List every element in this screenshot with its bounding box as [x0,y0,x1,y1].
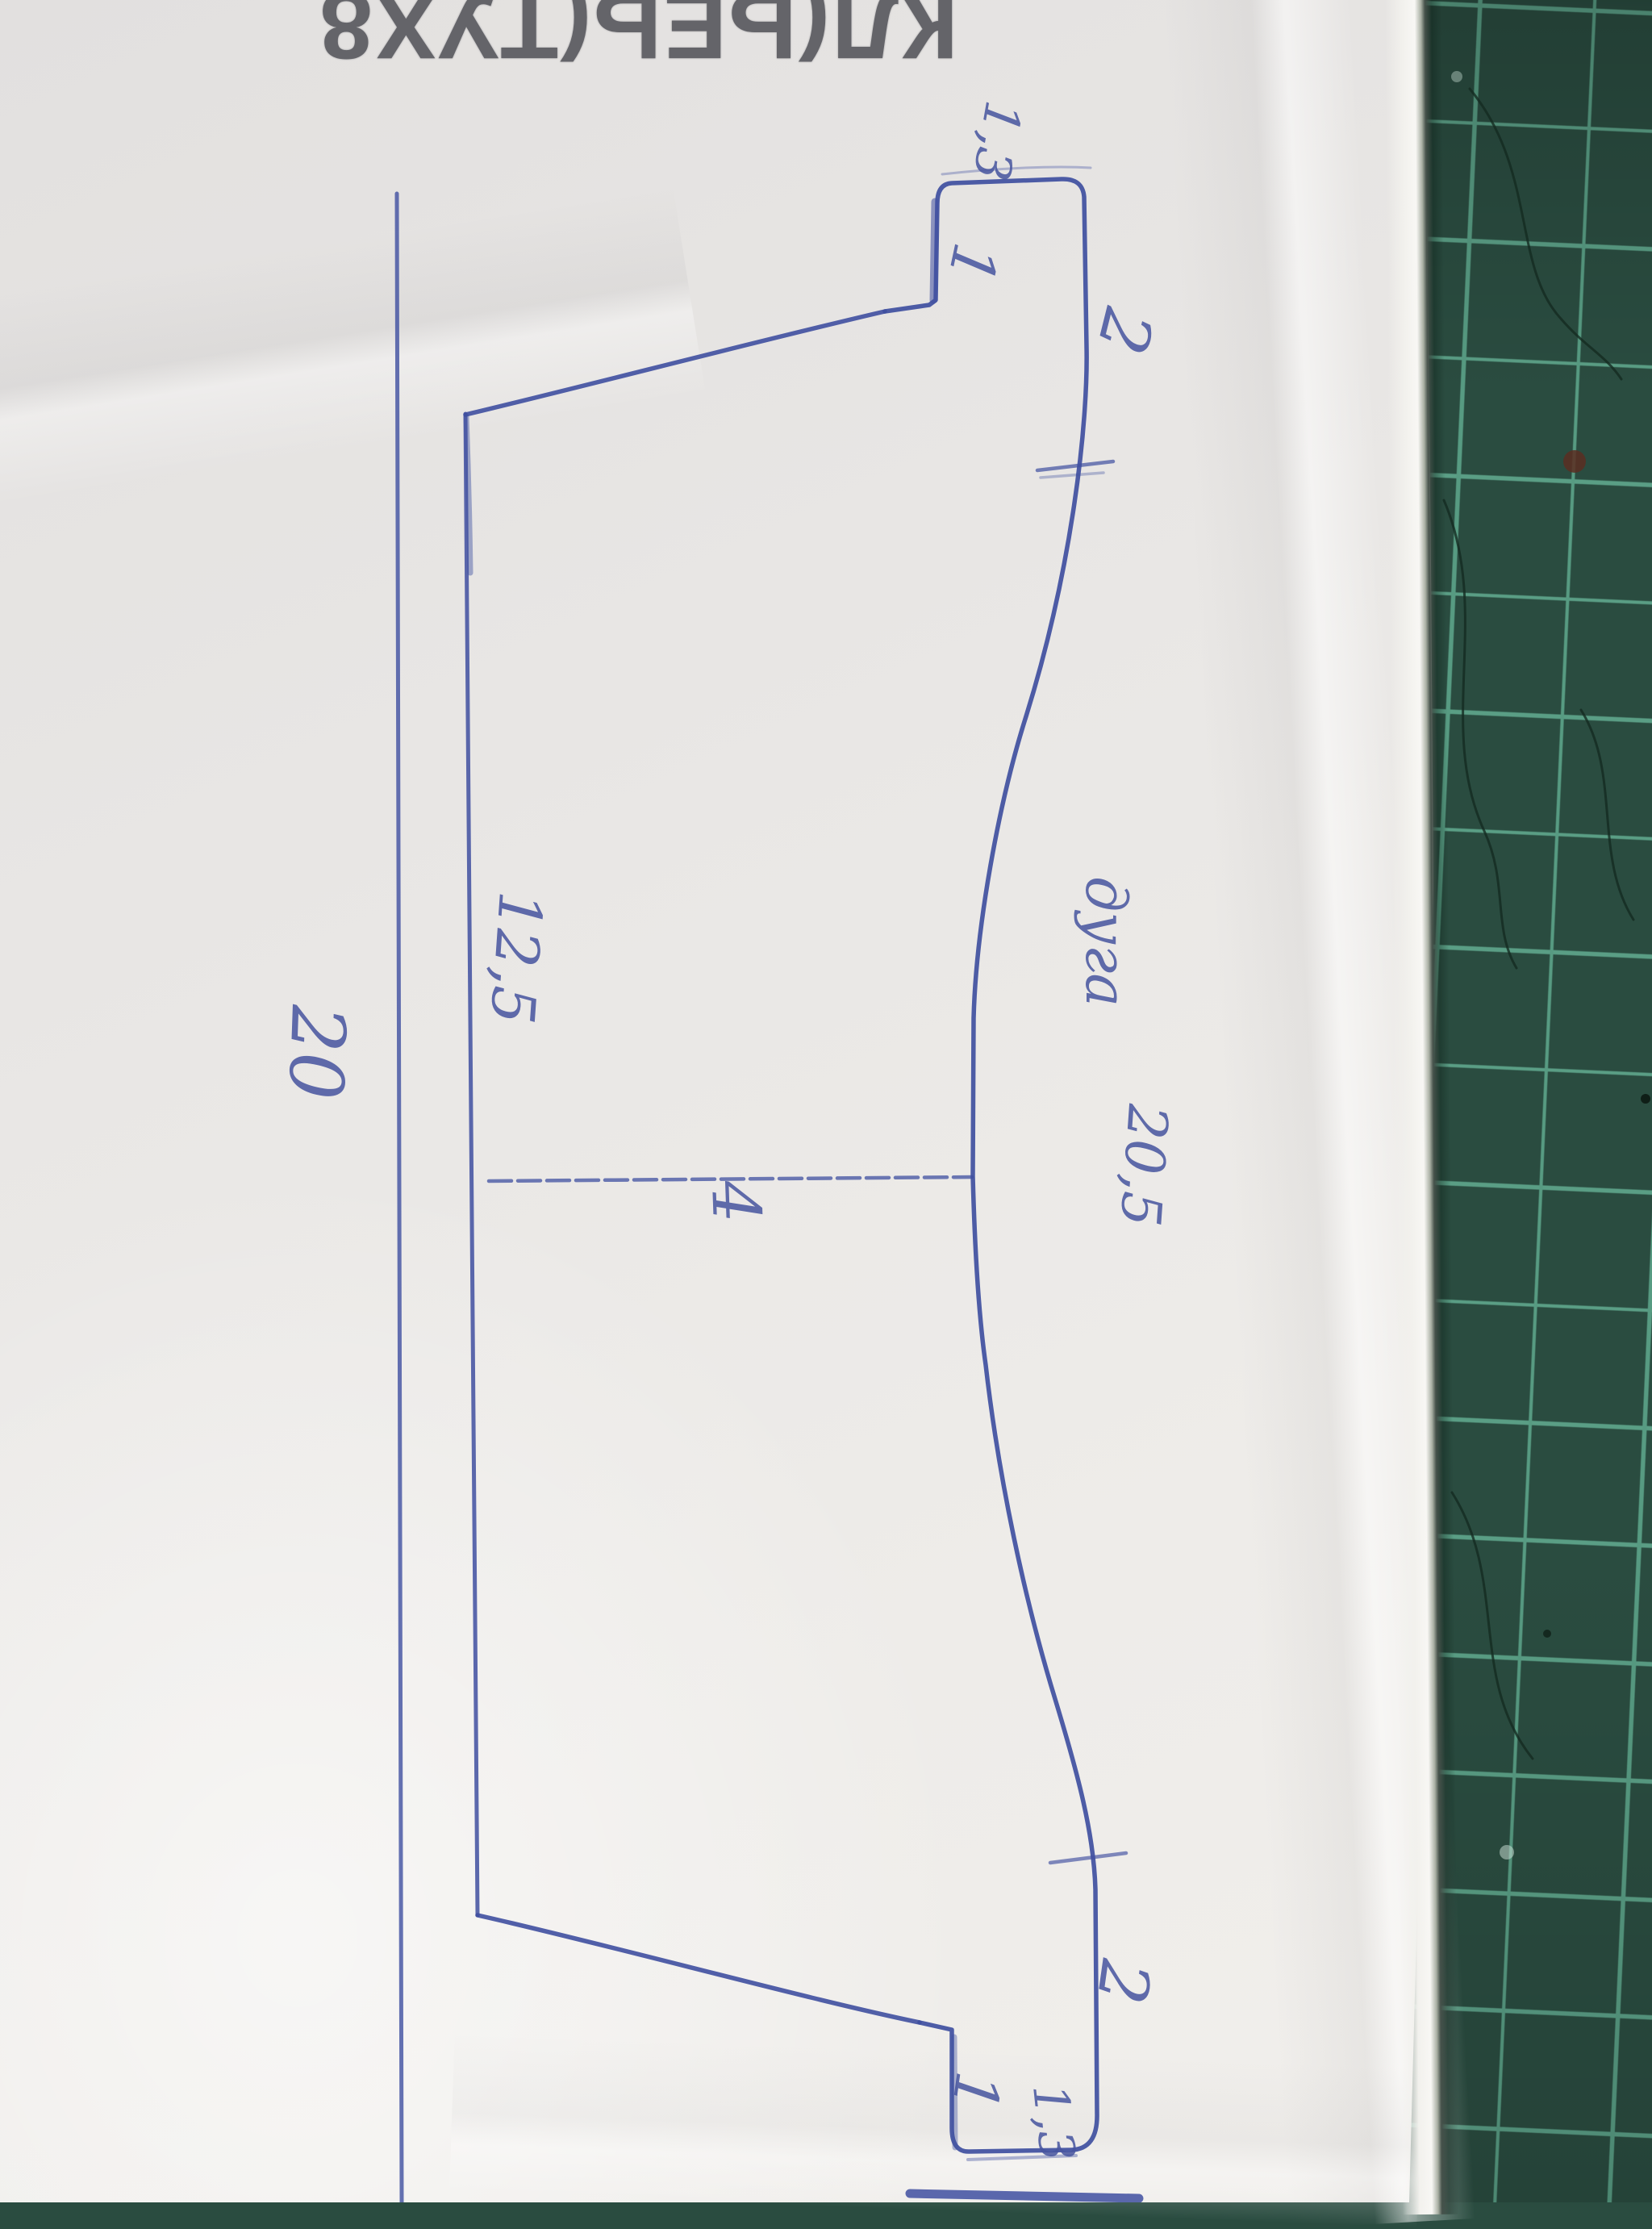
dimension-label-arc-length: 20,5 [1108,1102,1179,1229]
dimension-label-bottom-tab: 1,3 [1021,2081,1086,2164]
dimension-label-side-section: 12,5 [477,889,555,1026]
dimension-label-center-segment: 4 [696,1179,774,1224]
bottom-slant-edge [478,1915,920,2022]
tick-mark-top-echo [1041,473,1103,478]
tick-mark-top [1037,461,1113,470]
left-edge [465,414,478,1915]
tab-edge-reinked [933,202,935,300]
pen-sketch-svg [0,0,1652,2202]
bottom-partial-line [910,2194,1139,2198]
photo-of-sewing-pattern-sketch: { "printed_header": { "text": "КЛ(ЬЕЬ(ТУ… [0,0,1652,2202]
top-slant-edge [465,311,885,415]
dimension-label-fold-line: 20 [272,1004,361,1101]
dimension-label-arc-word: дуга [1073,876,1139,1007]
fold-line-20 [396,194,402,2202]
tick-mark-bottom [1050,1853,1126,1863]
